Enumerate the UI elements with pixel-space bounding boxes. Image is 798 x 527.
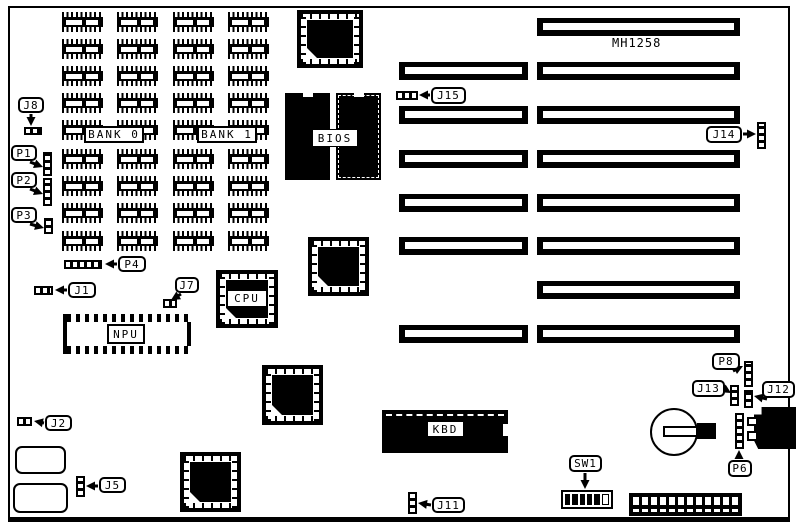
expansion-slot-short-0 (399, 62, 528, 80)
P8-header (744, 361, 753, 387)
ram-chip-c2-r0 (173, 12, 214, 32)
ram-chip-c1-r1 (117, 39, 158, 59)
chip-notch (354, 93, 364, 97)
board-model-label: MH1258 (612, 36, 661, 50)
callout-J8: J8 (18, 97, 44, 113)
ram-chip-c1-r7 (117, 203, 158, 223)
callout-P3: P3 (11, 207, 37, 223)
sw1-switch-6 (602, 494, 609, 505)
expansion-slot-long-6 (537, 281, 740, 299)
ram-chip-c0-r3 (62, 93, 103, 113)
J1-header (34, 286, 53, 295)
expansion-slot-long-0 (537, 18, 740, 36)
kbd-label: KBD (427, 421, 464, 437)
sw1-dip-switch (561, 490, 613, 509)
ram-chip-c3-r3 (228, 93, 269, 113)
expansion-slot-short-1 (399, 106, 528, 124)
plcc-die (307, 20, 353, 58)
ram-chip-c3-r5 (228, 149, 269, 169)
plcc-socket-lower (262, 365, 323, 425)
callout-P1: P1 (11, 145, 37, 161)
J13-header (730, 385, 739, 406)
battery-terminal (697, 423, 716, 439)
motherboard-diagram: MH1258 BANK 0BANK 1CPUBIOSNPUKBDJ8P1P2P3… (0, 0, 798, 527)
bank-label-1: BANK 1 (197, 126, 257, 143)
plcc-die (190, 462, 231, 502)
metal-can-2 (13, 483, 68, 513)
ram-chip-c3-r7 (228, 203, 269, 223)
ram-chip-c0-r7 (62, 203, 103, 223)
callout-SW1: SW1 (569, 455, 602, 472)
bios-label: BIOS (312, 129, 358, 147)
plcc-socket-bottom (180, 452, 241, 512)
J7-header (163, 299, 177, 308)
battery-tab (663, 426, 698, 437)
J12-header (744, 390, 753, 408)
ram-chip-c0-r6 (62, 176, 103, 196)
callout-J13: J13 (692, 380, 725, 397)
J15-header (396, 91, 418, 100)
chip-dashed-line (386, 414, 504, 416)
bank-label-0: BANK 0 (84, 126, 144, 143)
din-mount-tab-1 (747, 417, 758, 426)
callout-J1: J1 (68, 282, 96, 298)
npu-label: NPU (107, 324, 145, 344)
expansion-slot-long-7 (537, 325, 740, 343)
sw1-switch-4 (587, 494, 592, 505)
P3-header (44, 218, 53, 234)
ram-chip-c1-r8 (117, 231, 158, 251)
chip-notch (303, 93, 313, 97)
ram-chip-c2-r1 (173, 39, 214, 59)
expansion-slot-long-5 (537, 237, 740, 255)
expansion-slot-short-2 (399, 150, 528, 168)
expansion-slot-short-5 (399, 325, 528, 343)
callout-P6: P6 (728, 460, 752, 477)
plcc-die (272, 375, 313, 415)
expansion-slot-short-3 (399, 194, 528, 212)
ram-chip-c3-r0 (228, 12, 269, 32)
P1-header (43, 152, 52, 176)
cpu-socket-label: CPU (227, 290, 267, 307)
din-mount-tab-2 (747, 431, 758, 441)
metal-can-1 (15, 446, 66, 474)
J8-header (24, 127, 42, 135)
callout-J2: J2 (45, 415, 72, 431)
ram-chip-c2-r6 (173, 176, 214, 196)
ram-chip-c1-r0 (117, 12, 158, 32)
ram-chip-c0-r8 (62, 231, 103, 251)
ram-chip-c0-r1 (62, 39, 103, 59)
ram-chip-c1-r2 (117, 66, 158, 86)
ram-chip-c3-r8 (228, 231, 269, 251)
plcc-socket-middle (308, 237, 369, 296)
callout-P4: P4 (118, 256, 146, 272)
P4-header (64, 260, 102, 269)
callout-P8: P8 (712, 353, 740, 370)
sw1-switch-5 (594, 494, 599, 505)
ram-chip-c2-r2 (173, 66, 214, 86)
callout-J14: J14 (706, 126, 742, 143)
callout-J7: J7 (175, 277, 199, 293)
ram-chip-c2-r3 (173, 93, 214, 113)
P6-header (735, 413, 744, 449)
ram-chip-c2-r5 (173, 149, 214, 169)
ram-chip-c0-r5 (62, 149, 103, 169)
J2-header (17, 417, 32, 426)
expansion-slot-long-3 (537, 150, 740, 168)
callout-J5: J5 (99, 477, 126, 493)
plcc-die (318, 247, 359, 286)
ram-chip-c1-r6 (117, 176, 158, 196)
power-connector (629, 493, 742, 516)
callout-J12: J12 (762, 381, 795, 398)
J5-header (76, 476, 85, 497)
expansion-slot-long-2 (537, 106, 740, 124)
sw1-switch-2 (572, 494, 577, 505)
sw1-switch-3 (580, 494, 585, 505)
expansion-slot-long-4 (537, 194, 740, 212)
chip-notch (503, 424, 508, 436)
ram-chip-c0-r2 (62, 66, 103, 86)
sw1-switch-1 (565, 494, 570, 505)
ram-chip-c3-r2 (228, 66, 269, 86)
J11-header (408, 492, 417, 514)
plcc-socket-top (297, 10, 363, 68)
expansion-slot-long-1 (537, 62, 740, 80)
ram-chip-c3-r1 (228, 39, 269, 59)
J14-header (757, 122, 766, 149)
ram-chip-c1-r3 (117, 93, 158, 113)
P2-header (43, 178, 52, 206)
ram-chip-c3-r6 (228, 176, 269, 196)
callout-J15: J15 (431, 87, 466, 104)
callout-P2: P2 (11, 172, 37, 188)
ram-chip-c0-r0 (62, 12, 103, 32)
callout-J11: J11 (432, 497, 465, 513)
ram-chip-c1-r5 (117, 149, 158, 169)
expansion-slot-short-4 (399, 237, 528, 255)
ram-chip-c2-r8 (173, 231, 214, 251)
ram-chip-c2-r7 (173, 203, 214, 223)
